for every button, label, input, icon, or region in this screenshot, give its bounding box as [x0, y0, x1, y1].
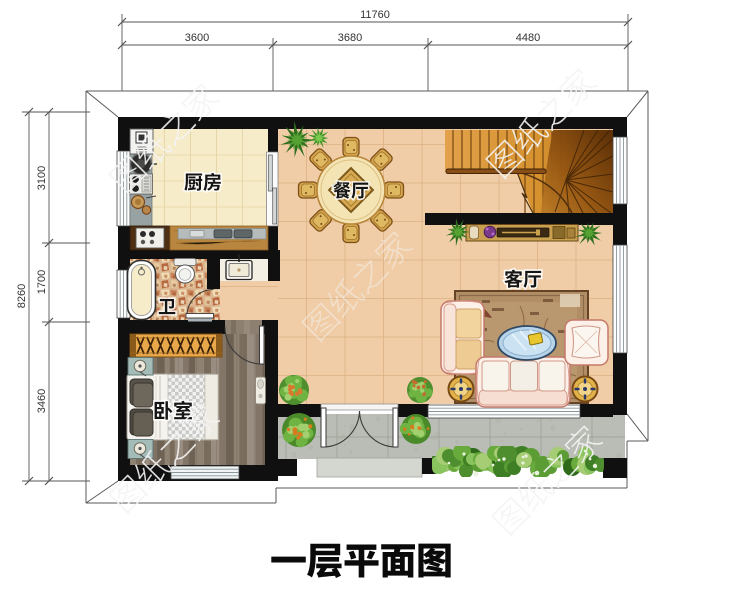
svg-text:8260: 8260 — [16, 284, 28, 308]
svg-text:3100: 3100 — [36, 166, 48, 190]
svg-text:1700: 1700 — [36, 270, 48, 294]
svg-text:3680: 3680 — [338, 32, 362, 44]
svg-text:11760: 11760 — [360, 9, 390, 21]
svg-text:3600: 3600 — [185, 32, 209, 44]
svg-text:3460: 3460 — [36, 389, 48, 413]
svg-text:4480: 4480 — [516, 32, 540, 44]
